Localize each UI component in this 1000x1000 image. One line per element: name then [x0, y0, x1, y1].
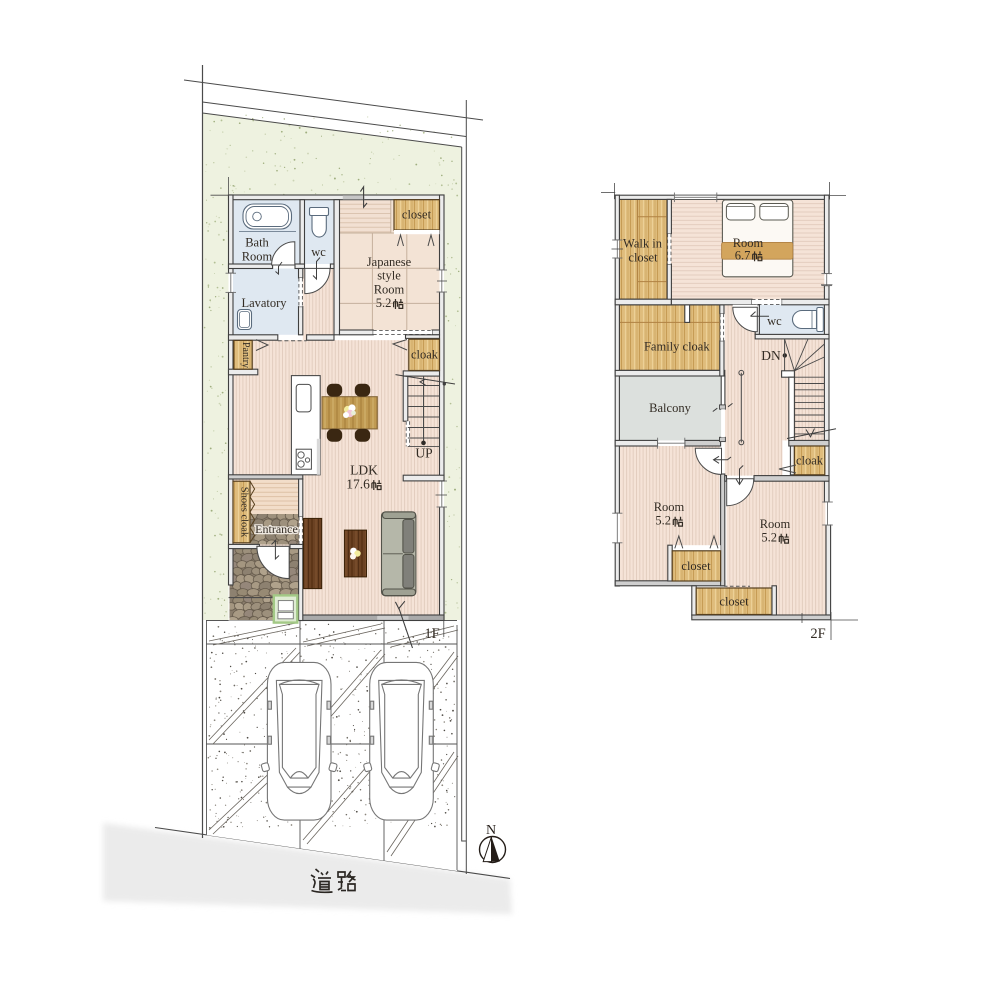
svg-text:5.2: 5.2	[376, 296, 392, 310]
svg-text:1F: 1F	[424, 626, 439, 642]
svg-text:5.2: 5.2	[761, 531, 777, 545]
svg-text:style: style	[377, 269, 401, 283]
svg-text:UP: UP	[415, 446, 432, 461]
svg-text:Bath: Bath	[245, 236, 269, 250]
svg-text:Lavatory: Lavatory	[241, 296, 287, 310]
svg-text:Room: Room	[374, 282, 405, 296]
svg-text:Japanese: Japanese	[367, 255, 412, 269]
svg-text:6.7: 6.7	[735, 249, 751, 263]
svg-text:wc: wc	[767, 314, 782, 328]
svg-text:wc: wc	[311, 245, 326, 259]
svg-text:DN: DN	[761, 348, 781, 363]
svg-text:Walk in: Walk in	[623, 237, 663, 251]
svg-text:closet: closet	[628, 251, 658, 265]
svg-text:closet: closet	[402, 208, 432, 222]
svg-text:Family cloak: Family cloak	[644, 339, 710, 353]
svg-text:Room: Room	[760, 517, 791, 531]
svg-text:cloak: cloak	[796, 454, 824, 468]
svg-text:Room: Room	[242, 250, 273, 264]
svg-text:LDK: LDK	[350, 463, 378, 478]
svg-text:Shoes cloak: Shoes cloak	[239, 487, 250, 538]
svg-text:Pantry: Pantry	[240, 342, 251, 368]
svg-text:closet: closet	[719, 595, 749, 609]
svg-text:5.2: 5.2	[655, 514, 671, 528]
svg-text:17.6: 17.6	[346, 477, 370, 492]
svg-text:N: N	[486, 823, 496, 838]
svg-text:closet: closet	[681, 559, 711, 573]
svg-text:2F: 2F	[810, 626, 825, 642]
svg-text:cloak: cloak	[411, 348, 439, 362]
svg-text:Entrance: Entrance	[255, 522, 298, 536]
svg-text:Room: Room	[654, 500, 685, 514]
svg-text:Balcony: Balcony	[649, 401, 691, 415]
